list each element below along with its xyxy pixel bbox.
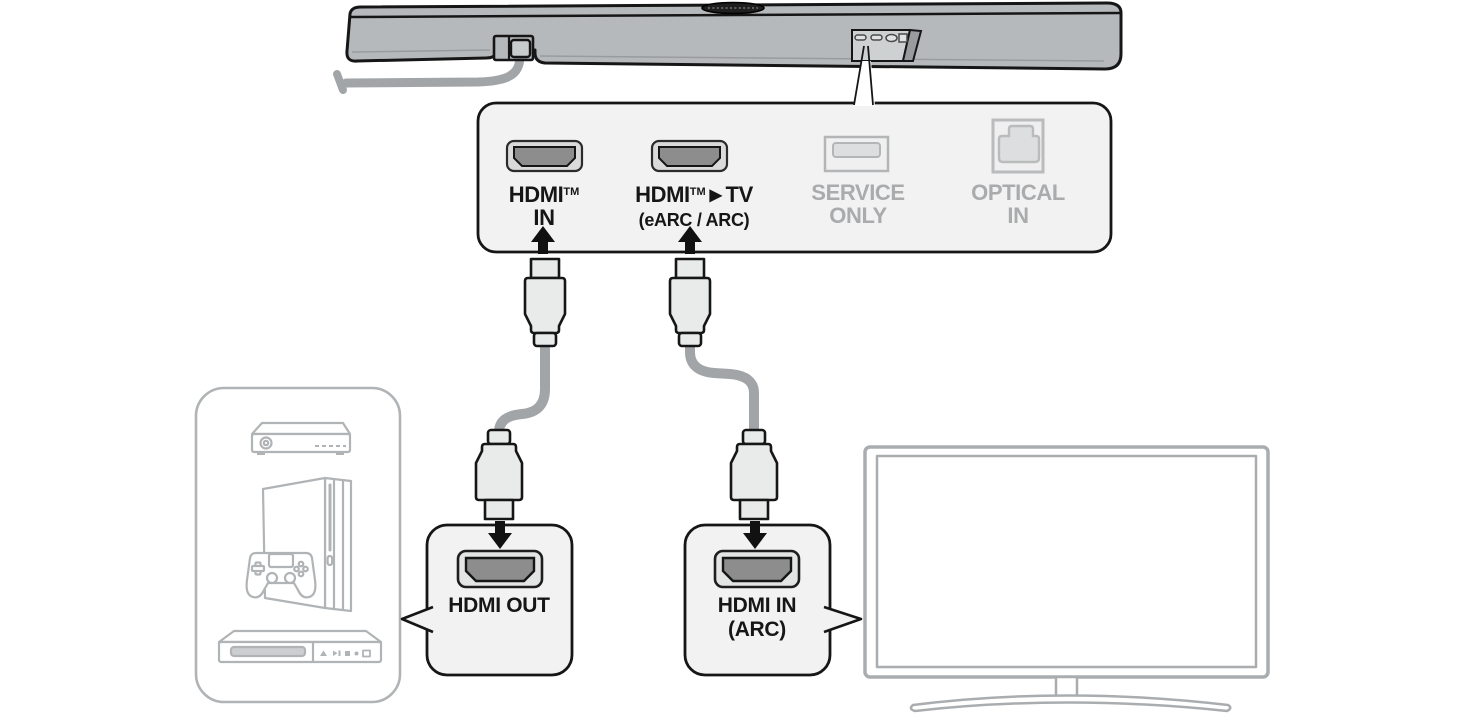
hdmi-tv-tm: TM: [690, 186, 706, 198]
hdmi-in-arc-line1: HDMI IN: [718, 594, 796, 617]
service-line1: SERVICE: [811, 180, 904, 205]
hdmi-port-icon: [507, 141, 582, 171]
hdmi-in-arc-line2: (ARC): [728, 618, 786, 641]
hdmi-in-brand: HDMI: [509, 182, 564, 207]
hdmi-connector-icon: [525, 259, 565, 346]
hdmi-out-label: HDMI OUT: [448, 594, 549, 617]
soundbar-control-oval: [702, 3, 764, 14]
hdmi-in-tm: TM: [563, 186, 579, 198]
optical-port-icon: [993, 120, 1043, 172]
right-triangle-icon: ▶: [710, 187, 722, 204]
port-label-service: SERVICE ONLY: [778, 181, 938, 227]
hdmi-tv-target: TV: [726, 182, 753, 207]
hdmi-port-icon: [458, 551, 542, 587]
hdmi-tv-brand: HDMI: [635, 182, 690, 207]
hdmi-tv-line2: (eARC / ARC): [639, 210, 750, 230]
callout-label-hdmi-in-arc: HDMI IN (ARC): [677, 594, 837, 642]
set-top-box-icon: [252, 423, 350, 455]
tv-icon: [865, 447, 1268, 711]
hdmi-in-line2: IN: [533, 205, 554, 230]
hdmi-port-icon: [715, 551, 799, 587]
soundbar-illustration: [337, 3, 1121, 91]
hdmi-connector-icon: [476, 430, 522, 519]
hdmi-connector-icon: [670, 259, 710, 346]
disc-player-icon: [219, 631, 381, 662]
hdmi-cable-left: [476, 259, 565, 519]
hdmi-connector-icon: [731, 430, 777, 519]
callout-label-hdmi-out: HDMI OUT: [419, 594, 579, 618]
connection-diagram: HDMITM IN HDMITM▶TV (eARC / ARC) SERVICE…: [0, 0, 1465, 715]
port-label-hdmi-tv: HDMITM▶TV (eARC / ARC): [594, 181, 794, 232]
power-plug: [511, 40, 530, 57]
source-devices-box: [196, 388, 400, 702]
hdmi-cable-right: [670, 259, 777, 519]
port-label-optical: OPTICAL IN: [938, 181, 1098, 227]
hdmi-port-icon: [652, 141, 727, 171]
optical-line2: IN: [1007, 203, 1028, 228]
optical-line1: OPTICAL: [971, 180, 1065, 205]
service-line2: ONLY: [829, 203, 887, 228]
usb-port-icon: [825, 137, 888, 171]
